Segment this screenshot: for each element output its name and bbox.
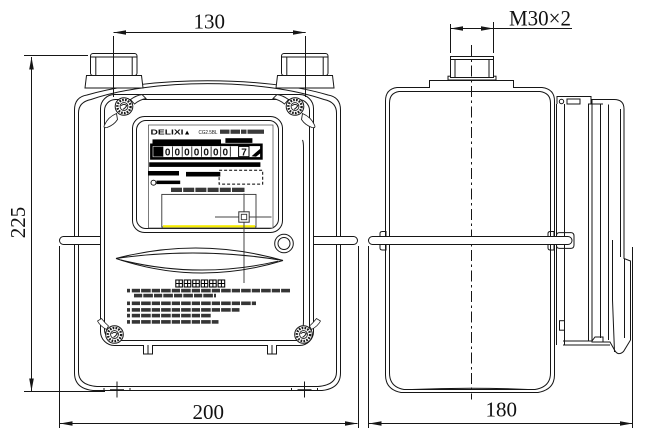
svg-text:CG2.5BL: CG2.5BL <box>199 130 218 136</box>
svg-text:180: 180 <box>486 398 518 422</box>
svg-text:7: 7 <box>241 148 247 159</box>
svg-text:0000000: 0000000 <box>165 148 232 159</box>
svg-text:M30×2: M30×2 <box>509 6 571 31</box>
svg-text:200: 200 <box>193 400 225 424</box>
svg-text:DELIXI: DELIXI <box>151 128 184 137</box>
svg-text:225: 225 <box>6 207 30 239</box>
svg-text:130: 130 <box>194 10 226 34</box>
